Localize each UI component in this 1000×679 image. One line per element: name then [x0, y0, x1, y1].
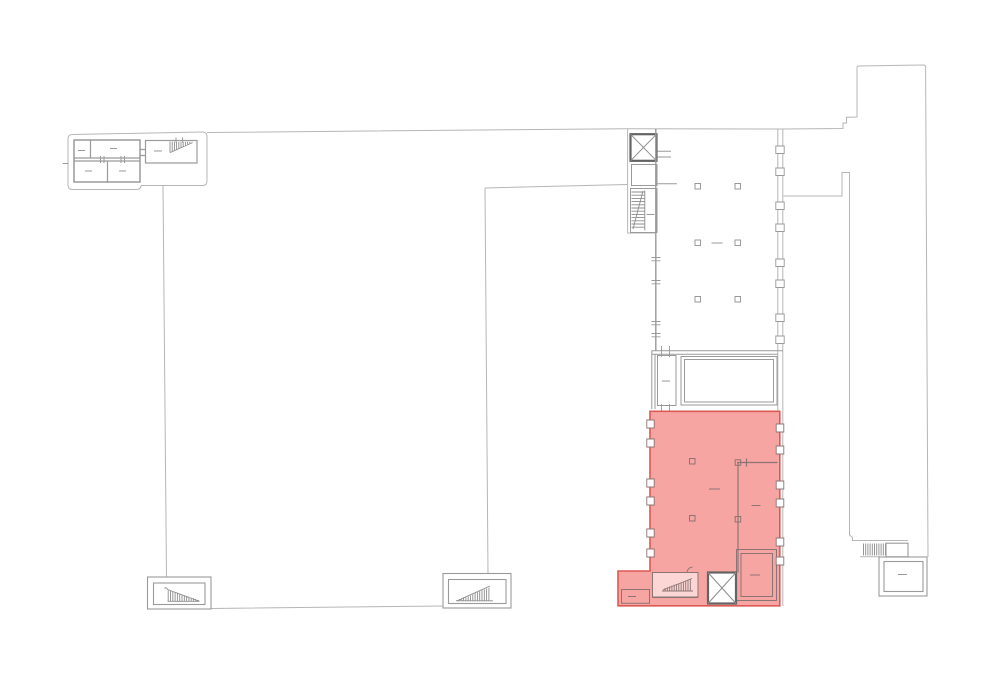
column: [695, 297, 701, 303]
column: [735, 297, 741, 303]
column: [695, 184, 701, 190]
floor-plan-drawing: [0, 0, 1000, 679]
highlight-elevator: [708, 573, 736, 604]
column: [735, 184, 741, 190]
column: [695, 240, 701, 246]
column: [735, 240, 741, 246]
floor-plan-viewport: [0, 0, 1000, 679]
